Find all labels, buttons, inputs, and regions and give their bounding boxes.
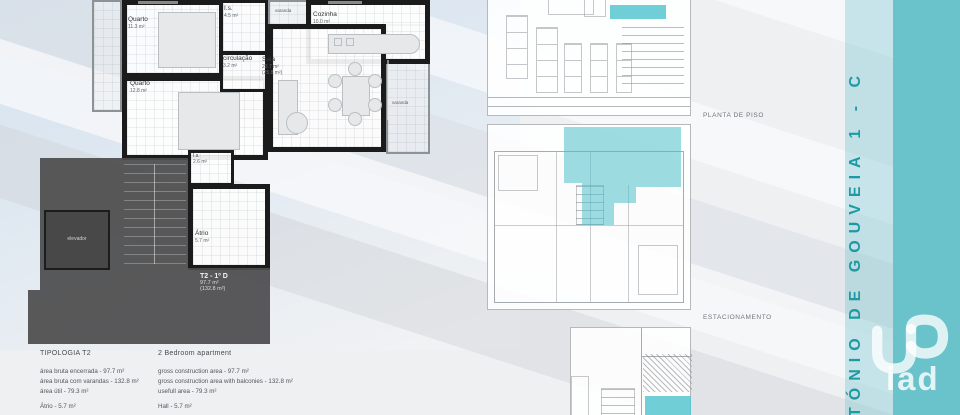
chair-icon xyxy=(348,62,362,76)
plan-edge xyxy=(488,97,690,107)
room-label-balcony-right: varanda xyxy=(392,100,408,106)
elevator-label: elevador xyxy=(46,236,108,242)
room-hall xyxy=(188,184,270,270)
unit-outline xyxy=(498,155,538,191)
spec-row-en: gross construction area with balconies -… xyxy=(158,378,293,385)
room-label-circulation: circulação 3.2 m² xyxy=(223,55,252,69)
parking-stalls xyxy=(536,27,558,93)
plan-line xyxy=(641,328,642,415)
room-label-bathroom-1: I.s. 4.5 m² xyxy=(224,5,238,19)
bed-furniture xyxy=(158,12,216,68)
stairs-divider xyxy=(154,164,155,264)
unit-outline xyxy=(638,245,678,295)
window xyxy=(328,1,362,4)
spec-row-pt: Átrio - 5.7 m² xyxy=(40,403,76,410)
highlighted-area xyxy=(610,5,666,19)
armchair-furniture xyxy=(286,112,308,134)
parking-stalls xyxy=(564,43,582,93)
window xyxy=(138,1,178,4)
window xyxy=(387,60,389,120)
room-label-hall: Átrio 5.7 m² xyxy=(195,230,209,244)
chair-icon xyxy=(328,98,342,112)
chair-icon xyxy=(348,112,362,126)
room-label-bathroom-2: I.s. 2.6 m² xyxy=(193,153,207,166)
main-floor-plan: elevador Quarto 11.3 m² I.s. 4.5 m² vara… xyxy=(28,0,432,346)
floor-key-label: PLANTA DE PISO xyxy=(703,112,764,119)
bed-furniture xyxy=(178,92,240,150)
banner-vertical-title: TÓNIO DE GOUVEIA 1 - C xyxy=(847,0,865,415)
room-label-living: Sala 23.7 m² (25.8 m²) xyxy=(262,56,282,77)
room-label-balcony-top: varanda xyxy=(275,8,291,14)
chair-icon xyxy=(328,74,342,88)
dining-table xyxy=(342,76,370,116)
unit-outline xyxy=(571,376,589,415)
garage-plan-bottom xyxy=(570,327,691,415)
parking-label: ESTACIONAMENTO xyxy=(703,314,772,321)
highlighted-parking-space xyxy=(645,396,691,415)
unit-tag: T2 - 1º D 97.7 m² (132.8 m²) xyxy=(200,273,228,292)
typology-label-pt: TIPOLOGIA T2 xyxy=(40,350,91,357)
spec-row-en: usefull area - 79.3 m² xyxy=(158,388,216,395)
plan-line xyxy=(494,225,684,226)
stairs xyxy=(124,164,186,264)
core-outline xyxy=(584,0,606,17)
spec-row-pt: área bruta com varandas - 132.8 m² xyxy=(40,378,139,385)
garage-plan-top xyxy=(487,0,691,116)
chair-icon xyxy=(368,98,382,112)
room-label-bedroom-2: Quarto 12.8 m² xyxy=(130,80,150,94)
chair-icon xyxy=(368,74,382,88)
unit-tag-name: T2 - 1º D xyxy=(200,273,228,280)
floor-key-plan xyxy=(487,124,691,310)
spec-row-en: gross construction area - 97.7 m² xyxy=(158,368,249,375)
balcony-left xyxy=(92,0,122,112)
parking-stalls xyxy=(590,43,608,93)
legend-lines xyxy=(622,27,684,89)
unit-tag-area-total: (132.8 m²) xyxy=(200,286,228,292)
stair-core xyxy=(601,388,635,415)
spec-row-pt: área bruta encerrada - 97.7 m² xyxy=(40,368,124,375)
spec-row-pt: área útil - 79.3 m² xyxy=(40,388,89,395)
room-label-bedroom-1: Quarto 11.3 m² xyxy=(128,16,148,30)
hatched-area xyxy=(643,354,692,392)
plan-line xyxy=(556,151,557,303)
cooktop-icon xyxy=(346,38,354,46)
spec-row-en: Hall - 5.7 m² xyxy=(158,403,192,410)
floorplan-sheet: elevador Quarto 11.3 m² I.s. 4.5 m² vara… xyxy=(0,0,960,415)
iad-logo-word: iad xyxy=(886,360,940,398)
room-label-kitchen: Cozinha 10.0 m² xyxy=(313,11,337,25)
typology-label-en: 2 Bedroom apartment xyxy=(158,350,231,357)
elevator-shaft: elevador xyxy=(44,210,110,270)
parking-stalls xyxy=(506,15,528,79)
cooktop-icon xyxy=(334,38,342,46)
